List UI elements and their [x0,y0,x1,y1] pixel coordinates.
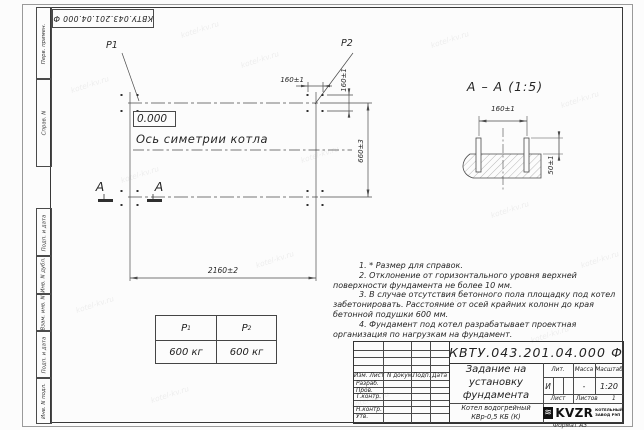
load-table-value-p2: 600 кг [216,340,276,363]
anchor-bolt-left [476,138,481,172]
load-label-p2: P2 [341,38,353,49]
dim-section-160: 160±1 [483,105,523,113]
dim-section-50: 50±1 [546,150,556,180]
load-label-p1: P1 [106,40,118,51]
section-view-title: А – А (1:5) [455,79,555,94]
drawing-sheet: kotel-kv.ru kotel-kv.ru kotel-kv.ru kote… [0,0,644,430]
tb-mass-value: - [573,382,595,391]
load-table-value-p1: 600 кг [156,340,216,363]
anchor-bolt-right [524,138,529,172]
p1-leader-line [122,53,139,101]
tb-row-tkontr: Т.контр. [356,394,381,400]
note-4: 4. Фундамент под котел разрабатывает про… [333,320,625,340]
tb-col-podp: Подп. [413,373,431,379]
dim-160-top: 160±1 [272,76,304,84]
tb-mass-header: Масса [573,367,595,373]
kvzr-logo-subtitle: КОТЕЛЬНЫЙ ЗАВОД РЭП [595,408,623,417]
tb-col-data: Дата [432,373,447,379]
tb-product-name: Котел водогрейный КВр-0,5 КБ (К) [449,404,543,421]
elevation-mark: 0.000 [133,111,176,127]
note-1: 1. * Размер для справок. [333,261,625,271]
load-table: P1 P2 600 кг 600 кг [155,315,277,364]
symmetry-axis-label: Ось симетрии котла [136,132,268,146]
tb-row-nkontr: Н.контр. [356,407,382,413]
section-letter-left: A [93,179,107,194]
tb-col-izm-list: Изм. Лист [354,373,383,379]
tb-document-title: Задание на установку фундамента [449,364,543,402]
notes-block: 1. * Размер для справок. 2. Отклонение о… [333,261,625,339]
kvzr-logo-mark: ≋ [543,407,553,419]
tb-lit-header: Лит. [543,367,573,373]
tb-sheet-label: Лист [543,396,573,402]
load-table-header-p2: P2 [216,316,276,340]
tb-company-logo: ≋ KVZR КОТЕЛЬНЫЙ ЗАВОД РЭП [543,403,623,423]
tb-row-razrab: Разраб. [356,381,379,387]
title-block-doc-number: КВТУ.043.201.04.000 Ф [449,342,623,364]
dim-660: 660±3 [356,134,366,168]
tb-scale-header: Масштаб [595,367,623,373]
load-table-header-p1: P1 [156,316,216,340]
tb-row-prov: Пров. [356,388,373,394]
dim-160-side: 160±1 [339,63,349,97]
title-block: КВТУ.043.201.04.000 Ф Изм. Лист N докум.… [353,341,624,424]
tb-lit-value: И [543,382,553,391]
tb-sheets-label: Листов [576,396,598,402]
plan-axes [122,53,353,281]
tb-col-n-dokum: N докум. [387,373,414,379]
tb-sheets-value: 1 [612,396,616,402]
tb-scale-value: 1:20 [595,382,623,391]
note-2: 2. Отклонение от горизонтального уровня … [333,271,625,291]
note-3: 3. В случае отсутствия бетонного пола пл… [333,290,625,319]
dim-2160: 2160±2 [193,266,253,275]
section-letter-right: A [152,179,166,194]
kvzr-logo-text: KVZR [555,406,593,420]
format-label: Формат А3 [535,422,605,429]
tb-row-utv: Утв. [356,414,368,420]
